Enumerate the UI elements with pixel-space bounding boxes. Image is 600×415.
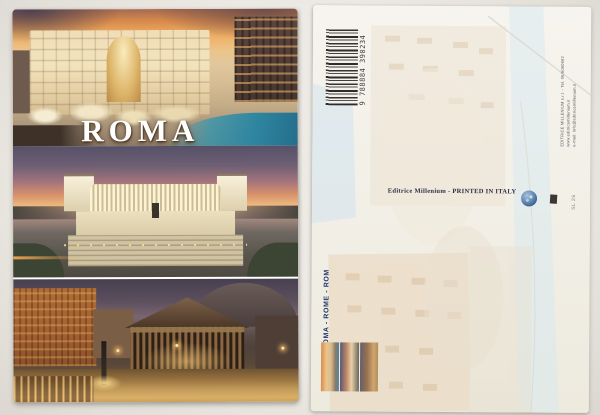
pantheon-rotunda [256,316,299,373]
orange-apartments [13,288,96,367]
postcard-front: ROMA [12,9,298,403]
pantheon-photo [13,279,298,403]
vittoriano-monument-photo [13,146,298,278]
equestrian-statue [151,203,159,218]
street-lamp [116,349,119,352]
portico-light-glow [139,340,236,370]
multilingual-title: ROMA - ROME - ROM [323,258,336,350]
barcode-bars [326,29,358,105]
trevi-central-niche [107,36,141,102]
postcard-back: 9 788884 390234 EDITRICE MILLENIUM s.r.l… [311,5,591,413]
publisher-mark-icon [550,194,558,203]
print-credit: Editrice Millenium - PRINTED IN ITALY [372,188,532,196]
front-title: ROMA [13,113,268,150]
side-building [93,309,133,358]
monument-steps [68,235,244,267]
monument-pavilion-right [217,173,247,210]
thumbnail-vittoriano [340,342,359,391]
vittoriano-monument [56,173,256,267]
barcode: 9 788884 390234 [326,29,372,105]
front-thumbnail [321,342,378,391]
cafe-terrace [13,376,93,402]
brick-building [235,17,298,102]
traffic-light-trail [13,256,87,259]
publisher-line: e-mail: info@editricemillenium.it [571,43,578,147]
thumbnail-trevi [321,342,340,391]
thumbnail-pantheon [360,342,379,391]
postcards-photo: ROMA [0,0,600,415]
globe-logo-icon [521,190,537,206]
catalog-code: SL 26 [571,190,580,210]
publisher-contact: EDITRICE MILLENIUM s.r.l. - Tel. 06/5060… [559,43,576,147]
street-lamp [281,346,284,349]
barcode-number: 9 788884 390234 [359,29,371,105]
